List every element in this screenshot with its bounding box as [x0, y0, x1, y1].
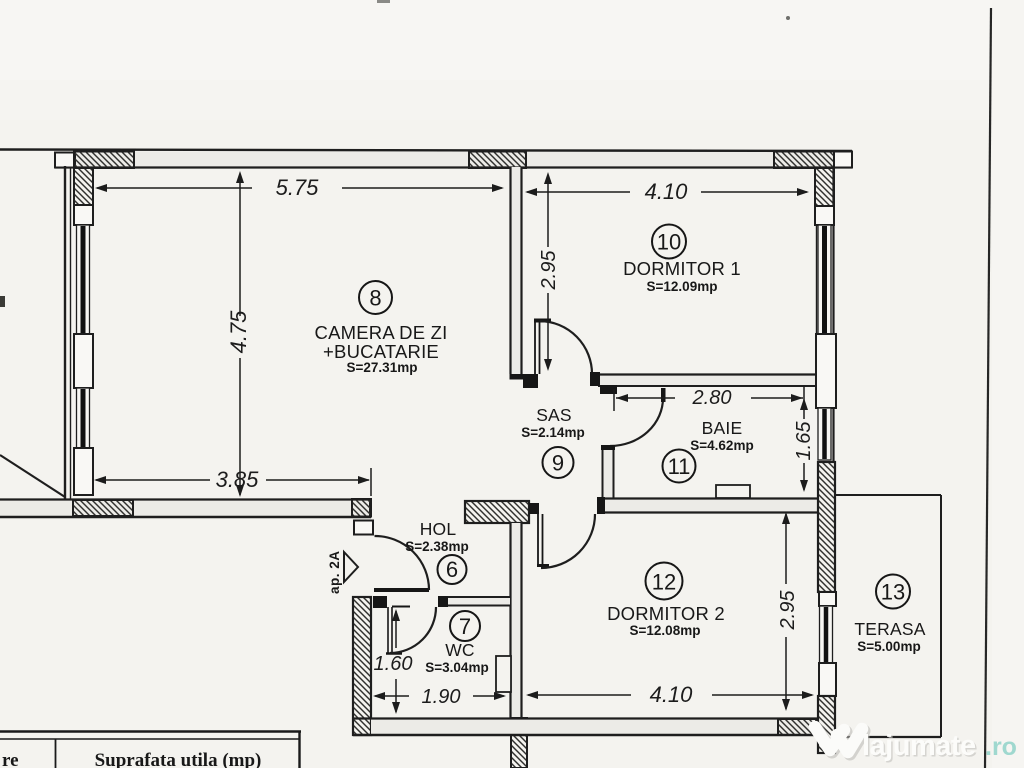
- svg-text:.ro: .ro: [985, 733, 1017, 761]
- svg-text:S=2.14mp: S=2.14mp: [521, 425, 584, 440]
- svg-text:ap. 2A: ap. 2A: [327, 550, 342, 594]
- svg-text:re: re: [2, 750, 19, 768]
- svg-text:DORMITOR 2: DORMITOR 2: [607, 603, 725, 624]
- svg-text:12: 12: [652, 570, 676, 595]
- svg-text:2.95: 2.95: [777, 590, 799, 631]
- svg-text:S=5.00mp: S=5.00mp: [857, 639, 920, 654]
- svg-text:9: 9: [552, 451, 564, 476]
- svg-text:SAS: SAS: [536, 405, 572, 425]
- svg-text:lajumate: lajumate: [862, 730, 976, 762]
- svg-text:S=12.08mp: S=12.08mp: [630, 623, 701, 638]
- svg-text:S=27.31mp: S=27.31mp: [347, 360, 418, 375]
- svg-text:1.65: 1.65: [793, 421, 815, 461]
- svg-text:S=4.62mp: S=4.62mp: [690, 438, 753, 453]
- svg-text:Suprafata utila (mp): Suprafata utila (mp): [95, 750, 262, 768]
- svg-text:CAMERA DE ZI: CAMERA DE ZI: [315, 322, 448, 343]
- svg-text:BAIE: BAIE: [702, 418, 743, 438]
- svg-text:1.60: 1.60: [374, 653, 413, 675]
- svg-text:TERASA: TERASA: [854, 619, 925, 639]
- svg-text:2.80: 2.80: [692, 387, 732, 409]
- svg-text:S=12.09mp: S=12.09mp: [647, 279, 718, 294]
- svg-text:HOL: HOL: [420, 519, 457, 539]
- svg-text:S=2.38mp: S=2.38mp: [405, 539, 468, 554]
- svg-text:3.85: 3.85: [216, 467, 260, 492]
- svg-text:8: 8: [369, 286, 381, 311]
- svg-text:DORMITOR 1: DORMITOR 1: [623, 258, 741, 279]
- svg-text:6: 6: [446, 557, 458, 582]
- svg-text:+BUCATARIE: +BUCATARIE: [323, 341, 439, 362]
- svg-text:5.75: 5.75: [276, 175, 320, 200]
- svg-text:2.95: 2.95: [538, 250, 560, 291]
- svg-text:S=3.04mp: S=3.04mp: [425, 660, 488, 675]
- svg-text:4.75: 4.75: [226, 310, 251, 354]
- svg-text:WC: WC: [445, 640, 475, 660]
- svg-text:1.90: 1.90: [422, 686, 461, 708]
- svg-text:10: 10: [657, 230, 681, 255]
- svg-text:11: 11: [668, 454, 691, 479]
- svg-text:7: 7: [459, 614, 471, 639]
- svg-text:4.10: 4.10: [645, 179, 689, 204]
- svg-text:13: 13: [881, 580, 905, 605]
- svg-text:4.10: 4.10: [650, 682, 694, 707]
